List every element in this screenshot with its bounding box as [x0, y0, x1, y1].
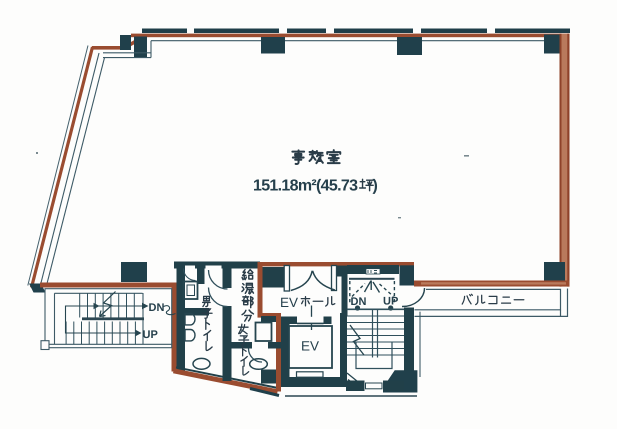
svg-text:): ): [373, 178, 378, 195]
svg-text:DN: DN: [351, 296, 367, 308]
svg-text:151.18m²(45.73: 151.18m²(45.73: [253, 178, 358, 195]
svg-text:EV: EV: [301, 339, 319, 354]
svg-text:UP: UP: [143, 329, 158, 341]
svg-text:UP: UP: [383, 296, 398, 308]
svg-text:EV: EV: [280, 295, 298, 310]
svg-text:DN: DN: [149, 302, 165, 314]
